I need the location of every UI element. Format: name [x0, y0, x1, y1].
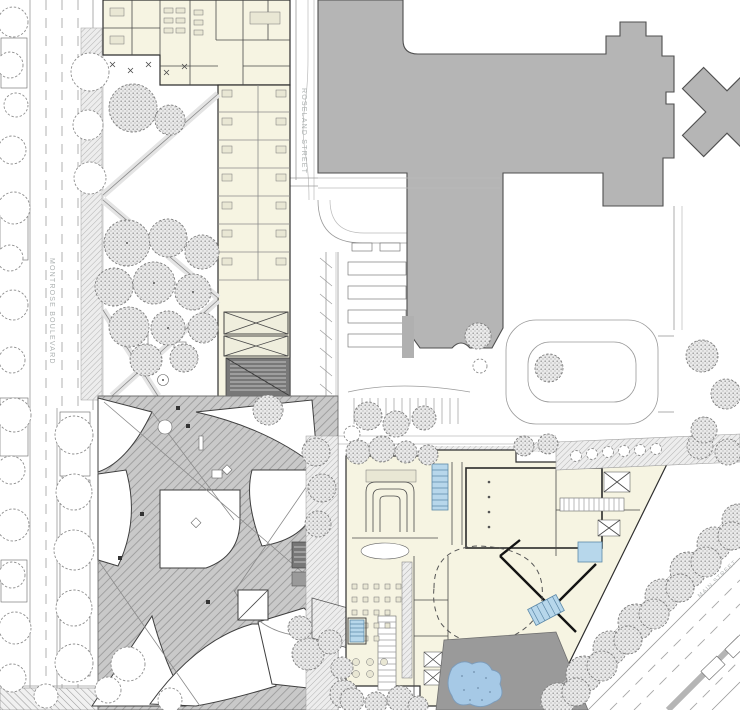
drop-off-loop — [506, 320, 674, 424]
stair-blue-a — [432, 464, 448, 510]
courtyard-trees — [95, 84, 219, 376]
stair-blue-entry — [348, 618, 366, 644]
street-label-montrose: MONTROSE BOULEVARD — [48, 258, 55, 365]
site-plan: MONTROSE BOULEVARD ROSELAND STREET — [0, 0, 740, 710]
street-label-roseland: ROSELAND STREET — [300, 88, 307, 174]
site-plan-drawing: MONTROSE BOULEVARD ROSELAND STREET — [0, 0, 740, 710]
skylight-boxes — [224, 312, 288, 356]
entry-ramp — [226, 358, 290, 396]
